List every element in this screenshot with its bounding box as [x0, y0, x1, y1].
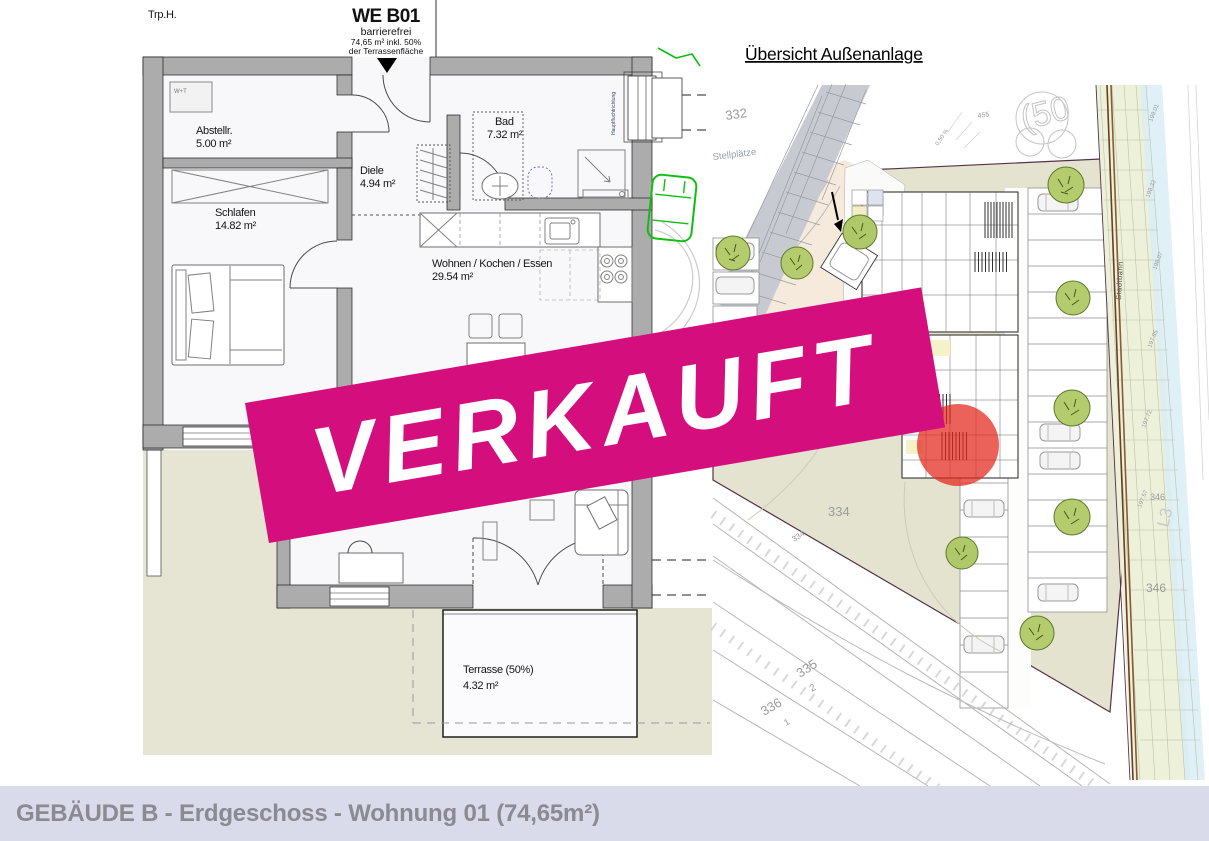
parcel-label: 335 [793, 656, 819, 680]
room-label: Schlafen [215, 207, 256, 219]
room-area: 14.82 m² [215, 220, 257, 232]
room-area: 29.54 m² [432, 271, 474, 283]
parcel-label: 336 [758, 695, 784, 719]
room-area: 4.94 m² [360, 178, 396, 190]
parcel-label: 346 [1150, 492, 1165, 502]
sheet: W+T [0, 0, 1209, 841]
unit-id: WE B01 [352, 6, 421, 27]
room-area: 7.32 m² [487, 129, 523, 141]
parcel-label: 332 [724, 105, 748, 123]
site-plan-title: Übersicht Außenanlage [745, 44, 923, 64]
washer-dryer-label: W+T [174, 89, 187, 95]
parking-row-label: Stellplätze [712, 147, 757, 163]
parcel-label: 455 [977, 111, 990, 120]
washer-dryer-icon [170, 82, 212, 112]
room-area: 4.32 m² [463, 680, 499, 692]
room-label: Wohnen / Kochen / Essen [432, 258, 552, 270]
parcel-label: 1 [782, 717, 791, 728]
unit-header: WE B01 barrierefrei 74,65 m² inkl. 50% d… [349, 6, 424, 56]
room-area: 5.00 m² [196, 138, 232, 150]
footer-bar: GEBÄUDE B - Erdgeschoss - Wohnung 01 (74… [0, 786, 1209, 841]
room-label: Diele [360, 165, 384, 177]
fire-truck-icon [647, 174, 697, 242]
grade-label: 0,50 % [935, 128, 951, 147]
room-label: Bad [495, 116, 514, 128]
room-label: Terrasse (50%) [463, 664, 533, 676]
areaway [147, 450, 161, 576]
parcel-label: 334 [828, 504, 850, 519]
room-label: Abstellr. [196, 125, 233, 137]
page-title: GEBÄUDE B - Erdgeschoss - Wohnung 01 (74… [0, 800, 600, 828]
escape-route-label: Hauptfluchtrichtung [611, 92, 617, 135]
bed-icon [172, 265, 284, 365]
vehicle-fragment-icon [658, 48, 700, 66]
parcel-label: 346 [1146, 581, 1166, 595]
unit-area-note2: der Terrassenfläche [349, 46, 424, 56]
parcel-label: 2 [808, 682, 819, 694]
staircase-label: Trp.H. [148, 9, 177, 21]
